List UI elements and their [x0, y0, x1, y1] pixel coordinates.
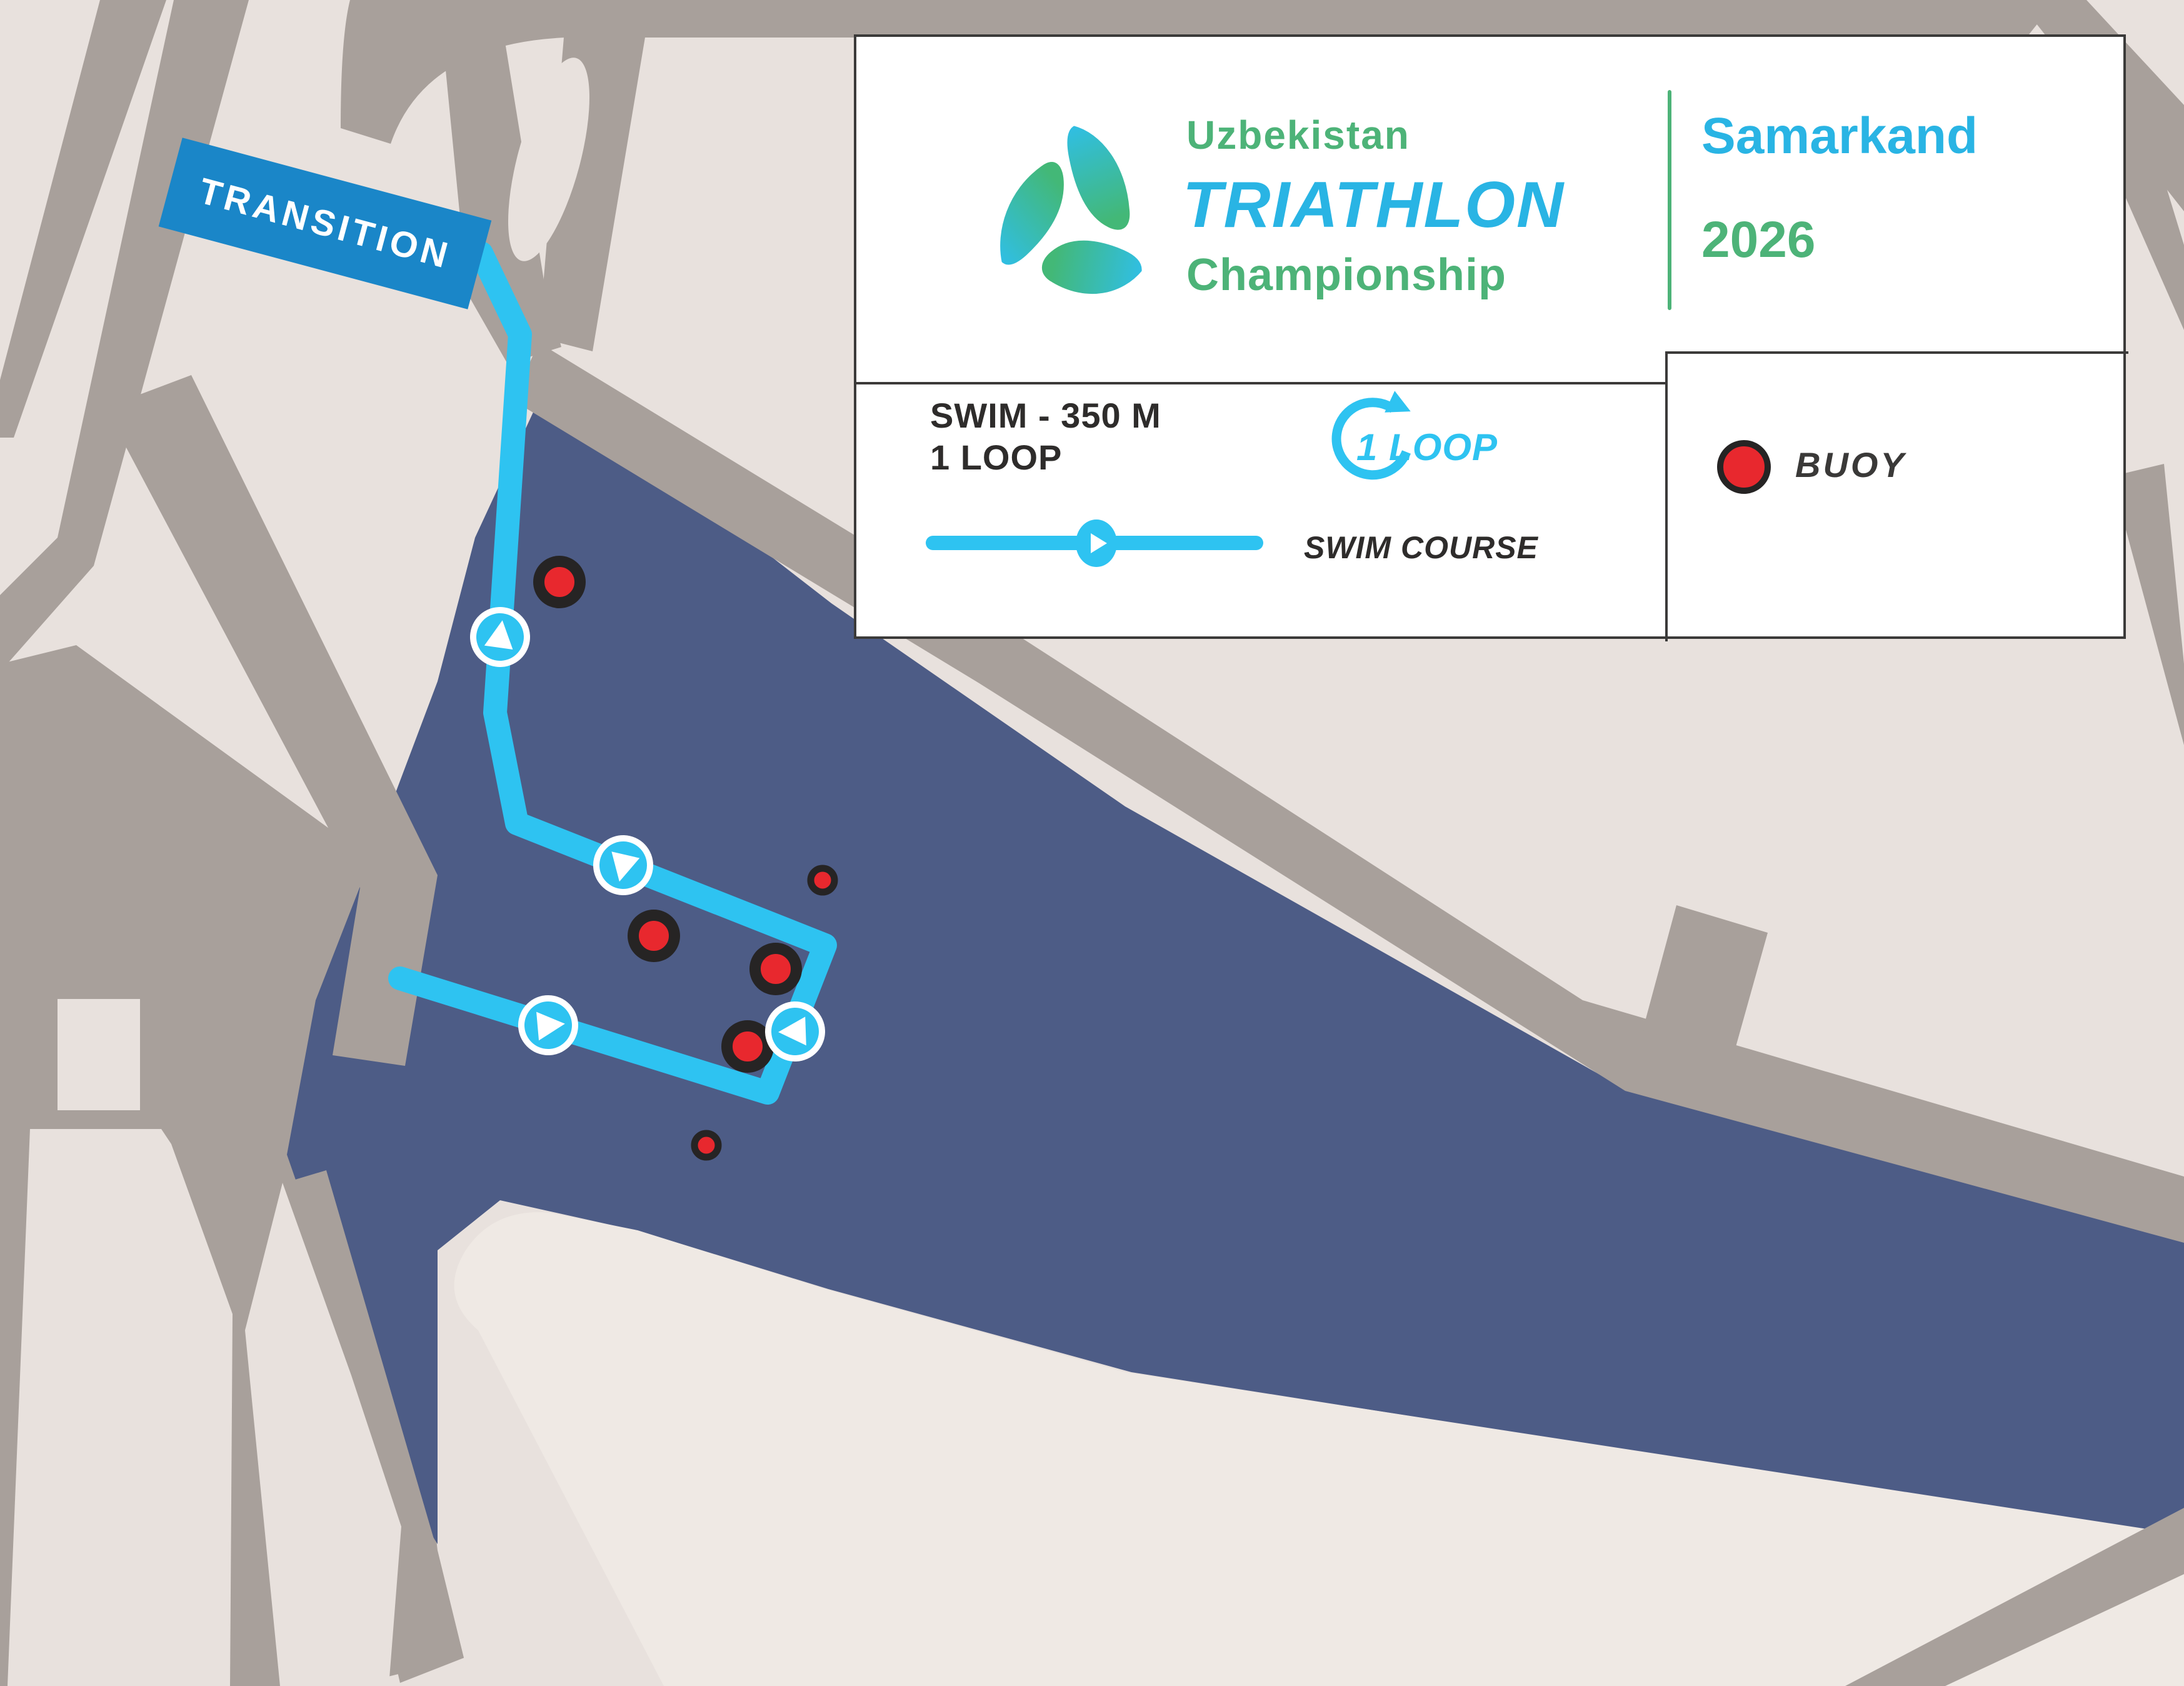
buoy-marker — [727, 1026, 768, 1067]
course-direction-marker-icon — [1076, 519, 1117, 567]
buoy-marker — [633, 915, 674, 956]
event-subtitle: Championship — [1186, 249, 1506, 301]
swim-distance-label: SWIM - 350 M 1 LOOP — [930, 394, 1161, 478]
header-divider-bar — [1668, 90, 1671, 310]
land-block-notch — [58, 999, 140, 1110]
buoy-marker — [539, 561, 580, 603]
legend-panel: Uzbekistan TRIATHLON Championship Samark… — [854, 34, 2126, 639]
org-name: Uzbekistan — [1186, 112, 1410, 158]
buoy-marker-small — [811, 868, 834, 892]
buoy-marker-small — [694, 1133, 718, 1157]
buoy-legend-icon — [1717, 440, 1771, 494]
event-name: TRIATHLON — [1183, 168, 1565, 243]
course-map-poster: TRANSITION Uzbekistan TRIATHLON — [0, 0, 2184, 1686]
buoy-marker — [755, 948, 796, 990]
road-top — [566, 0, 2056, 38]
host-city: Samarkand — [1701, 107, 1978, 166]
triathlon-logo-icon — [995, 113, 1153, 319]
panel-divider-vertical — [1665, 351, 1668, 641]
panel-divider-horizontal-left — [856, 382, 1665, 384]
buoy-legend-label: BUOY — [1795, 444, 1906, 485]
course-legend-label: SWIM COURSE — [1304, 529, 1538, 566]
loop-badge-label: 1 LOOP — [1356, 426, 1498, 469]
panel-divider-horizontal-right — [1665, 351, 2128, 354]
event-year: 2026 — [1701, 211, 1815, 269]
